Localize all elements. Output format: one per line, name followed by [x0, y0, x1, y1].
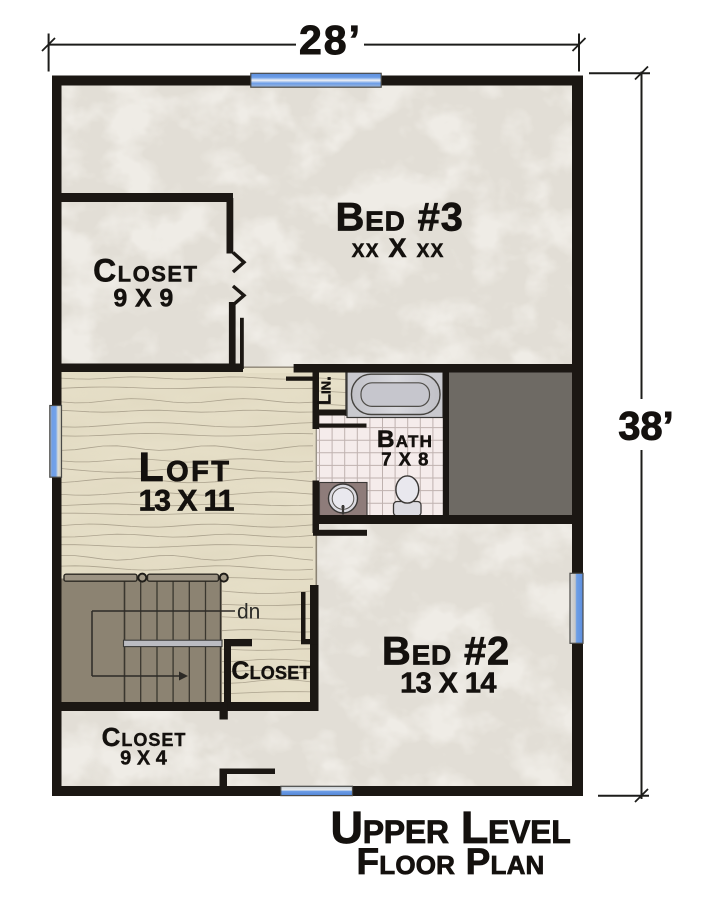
- svg-text:Closet: Closet: [231, 657, 310, 685]
- svg-text:Lin.: Lin.: [315, 376, 335, 405]
- svg-text:38’: 38’: [618, 405, 674, 449]
- svg-text:9 X 4: 9 X 4: [120, 748, 168, 770]
- svg-text:9 X 9: 9 X 9: [113, 285, 173, 313]
- svg-text:Floor Plan: Floor Plan: [356, 841, 544, 882]
- svg-text:13 X 14: 13 X 14: [400, 668, 496, 700]
- svg-text:13 X 11: 13 X 11: [139, 485, 234, 518]
- svg-text:Closet: Closet: [93, 252, 198, 288]
- svg-text:Loft: Loft: [139, 444, 232, 490]
- svg-text:7 X 8: 7 X 8: [381, 449, 429, 470]
- svg-text:dn: dn: [237, 601, 260, 624]
- svg-text:xx X xx: xx X xx: [352, 233, 445, 263]
- svg-text:28’: 28’: [299, 17, 362, 63]
